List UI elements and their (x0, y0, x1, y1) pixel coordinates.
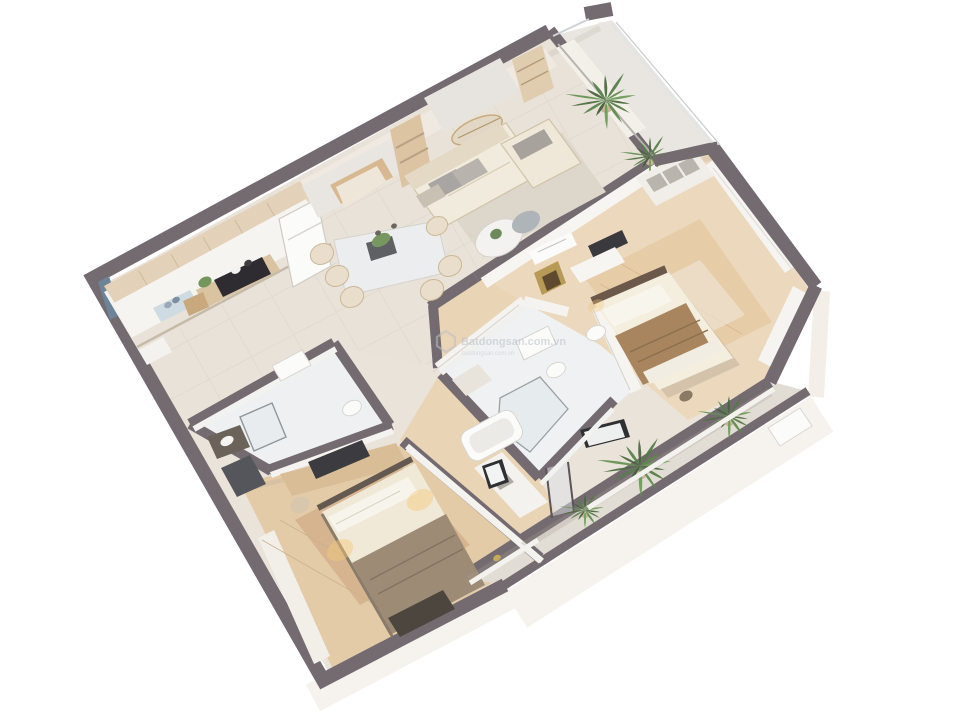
svg-text:Batdongsan.com.vn: Batdongsan.com.vn (461, 336, 566, 348)
svg-text:batdongsan.com.vn: batdongsan.com.vn (462, 351, 514, 357)
